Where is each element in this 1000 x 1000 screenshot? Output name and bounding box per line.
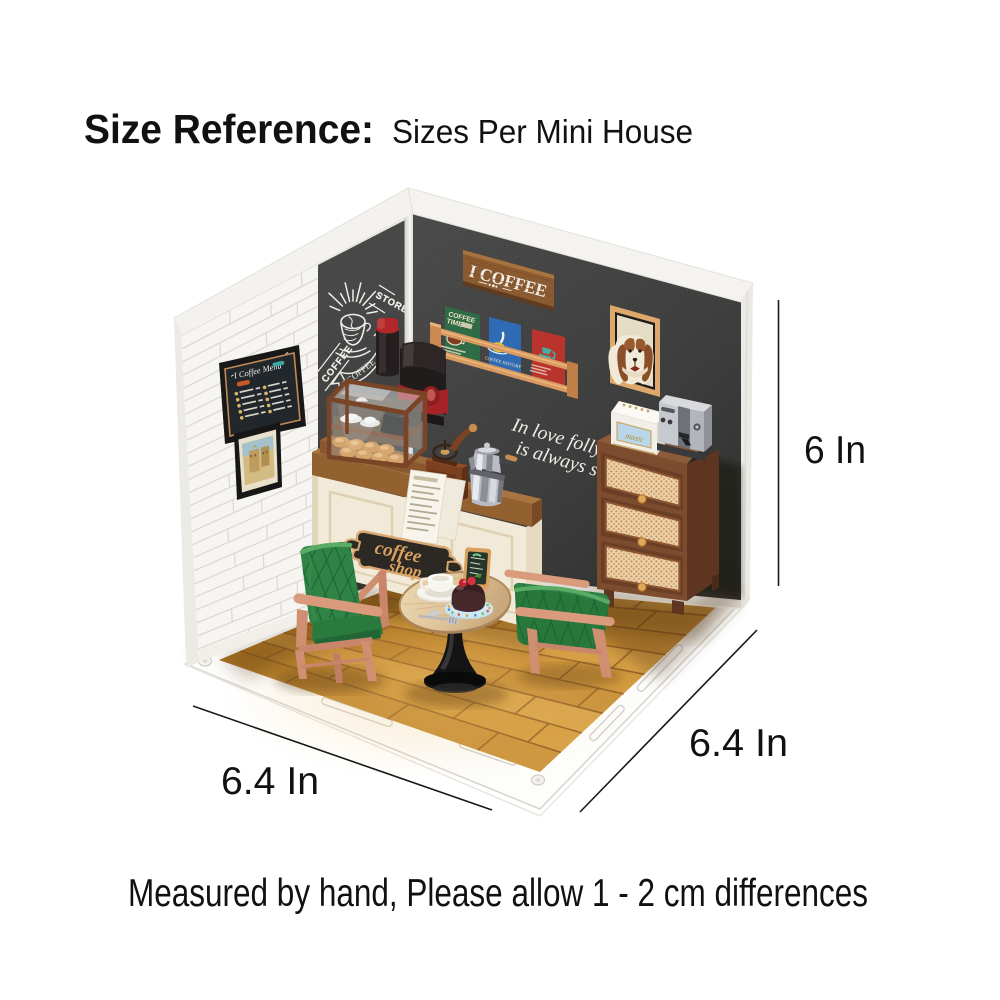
svg-text:Size Reference:: Size Reference: [84, 106, 374, 152]
svg-text:6.4 In: 6.4 In [221, 760, 319, 803]
svg-text:Sizes Per Mini House: Sizes Per Mini House [392, 113, 693, 150]
svg-text:6.4 In: 6.4 In [689, 722, 788, 765]
svg-text:6 In: 6 In [804, 429, 866, 472]
svg-text:Measured by hand, Please allow: Measured by hand, Please allow 1 - 2 cm … [128, 872, 868, 915]
